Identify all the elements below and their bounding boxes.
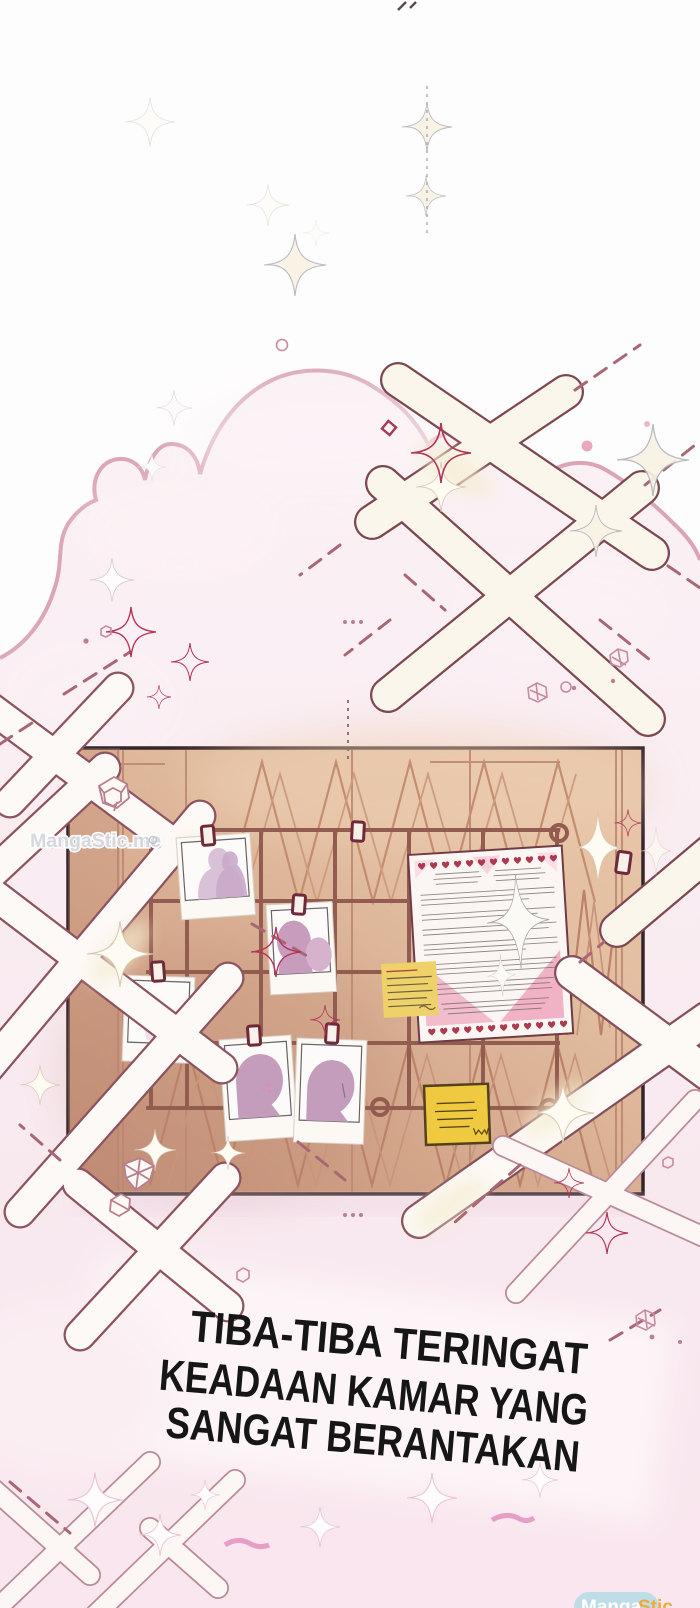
svg-text:Manga: Manga — [581, 1597, 642, 1608]
svg-text:Stic: Stic — [638, 1597, 673, 1608]
svg-text:MangaStic.me: MangaStic.me — [30, 830, 161, 852]
